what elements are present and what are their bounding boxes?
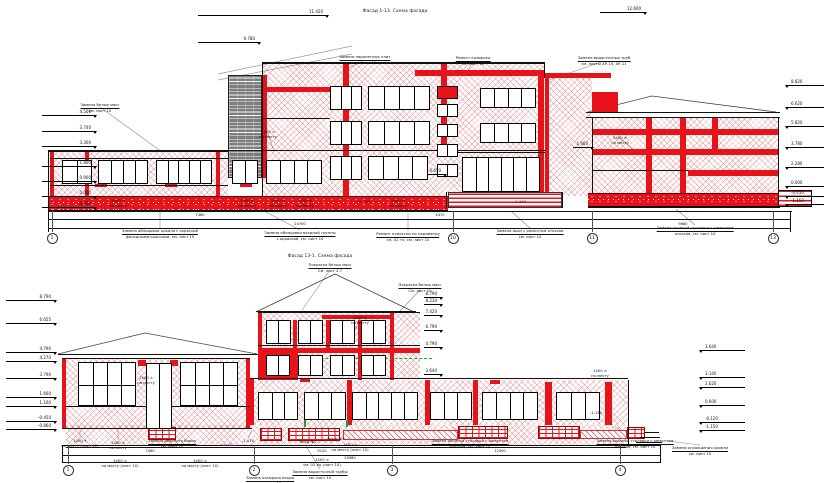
line xyxy=(586,117,780,118)
annotation-line: по месту xyxy=(259,135,277,140)
dimension-label: 12400 xyxy=(494,449,505,453)
annotation: 1400 ×по месту xyxy=(259,130,277,139)
marker-arrow-icon xyxy=(53,406,57,409)
marker-arrow-icon xyxy=(439,330,443,333)
axis-drop-line xyxy=(52,211,53,232)
marker-line xyxy=(6,323,56,324)
marker-arrow-icon xyxy=(53,323,57,326)
line xyxy=(62,462,660,463)
green-mark xyxy=(346,420,348,427)
line xyxy=(48,219,790,220)
marker-value: -0.450 xyxy=(428,169,441,173)
annotation-line: фасадными красками, см. лист 10 xyxy=(122,235,198,240)
repair-zone xyxy=(646,118,652,193)
annotation: 1400 ×см. 02 по (лист 10) xyxy=(303,458,341,467)
marker-value: 1.660 xyxy=(40,392,51,396)
window xyxy=(232,160,258,184)
annotation-line: по месту xyxy=(611,141,629,146)
repair-zone xyxy=(50,150,54,196)
window xyxy=(556,392,600,420)
window-mullion xyxy=(414,87,415,109)
marker-value: 4.270 xyxy=(40,356,51,360)
window-mullion xyxy=(526,158,527,191)
annotation-line: по месту (лист 10) xyxy=(181,464,218,469)
marker-arrow-icon xyxy=(785,167,789,170)
annotation: -1.150 xyxy=(358,200,370,205)
annotation-line: с окраской, см. лист 10 xyxy=(264,237,335,242)
annotation: Замена окон с ремонтом откосовсм. лист 1… xyxy=(497,229,564,239)
marker-value: 1.660 xyxy=(577,142,588,146)
green-mark xyxy=(304,420,306,427)
window-mullion xyxy=(121,363,122,405)
marker-value: 3.780 xyxy=(791,142,802,146)
annotation: Замена облицовки цоколя с окраскойфасадн… xyxy=(122,229,198,239)
annotation: 1400 ×по месту xyxy=(351,316,369,325)
annotation-line: См. лист 4.7 xyxy=(308,269,351,274)
annotation-line: См. лист 10 xyxy=(398,289,441,294)
window xyxy=(146,363,172,429)
window-mullion xyxy=(135,161,136,183)
marker-arrow-icon xyxy=(93,131,97,134)
line xyxy=(250,378,628,379)
window-mullion xyxy=(373,356,374,375)
marker-line xyxy=(786,167,824,168)
marker-arrow-icon xyxy=(439,297,443,300)
marker-line xyxy=(6,429,56,430)
window-mullion xyxy=(107,363,108,405)
marker-line xyxy=(700,377,745,378)
dimension-label: 9680 xyxy=(678,222,687,226)
annotation-line: по месту xyxy=(109,204,127,209)
annotation: 1400 ×по месту xyxy=(269,199,287,208)
marker-arrow-icon xyxy=(53,352,57,355)
annotation-line: по месту xyxy=(137,381,155,386)
marker-arrow-icon xyxy=(93,207,97,210)
annotation: 1400 ×по месту xyxy=(611,136,629,145)
marker-line xyxy=(700,405,745,406)
window-mullion xyxy=(457,393,458,419)
annotation-line: по месту xyxy=(351,321,369,326)
window-mullion xyxy=(373,321,374,343)
window xyxy=(266,160,322,184)
annotation-line: по месту xyxy=(109,446,127,451)
marker-arrow-icon xyxy=(785,126,789,129)
marker-value: 6.655 xyxy=(40,318,51,322)
window-mullion xyxy=(447,105,448,116)
marker-arrow-icon xyxy=(93,115,97,118)
line xyxy=(628,380,629,445)
window-mullion xyxy=(280,161,281,183)
marker-value: 3.740 xyxy=(80,126,91,130)
annotation: 1400 ×по месту (лист 10) xyxy=(61,439,98,448)
marker-arrow-icon xyxy=(439,304,443,307)
marker-arrow-icon xyxy=(93,166,97,169)
annotation: Вход №3 xyxy=(327,437,344,442)
drawing-title-bottom: Фасад 13-1. Схема фасада xyxy=(288,254,353,259)
window-mullion xyxy=(444,393,445,419)
line xyxy=(228,150,545,151)
annotation: 1400 ×по месту xyxy=(137,376,155,385)
window-mullion xyxy=(585,393,586,419)
marker-value: 12.600 xyxy=(627,7,641,11)
annotation-line: по месту xyxy=(389,204,407,209)
axis-drop-line xyxy=(392,445,393,464)
repair-zone xyxy=(216,150,220,196)
window-mullion xyxy=(342,356,343,375)
marker-line xyxy=(6,378,56,379)
marker-arrow-icon xyxy=(590,147,594,150)
annotation-line: -1.150 xyxy=(590,411,602,416)
marker-arrow-icon xyxy=(93,196,97,199)
marker-line xyxy=(700,430,745,431)
window-mullion xyxy=(341,87,342,109)
brick-patch xyxy=(260,428,282,441)
marker-value: -0.450 xyxy=(791,191,804,195)
facade-drawing-sheet: Фасад 1-13. Схема фасада Фасад 13-1. Схе… xyxy=(0,0,828,483)
window xyxy=(437,104,458,117)
marker-arrow-icon xyxy=(699,377,703,380)
annotation-line: по месту (лист 10) xyxy=(61,444,98,449)
window-mullion xyxy=(223,363,224,405)
window-mullion xyxy=(447,165,448,176)
annotation-line: по месту xyxy=(296,204,314,209)
window-transom xyxy=(181,385,237,386)
line xyxy=(262,118,330,119)
window xyxy=(266,355,290,376)
marker-arrow-icon xyxy=(53,429,57,432)
window xyxy=(98,160,148,184)
marker-value: 0.000 xyxy=(791,181,802,185)
window-mullion xyxy=(310,321,311,343)
marker-value: 2.620 xyxy=(705,382,716,386)
annotation-line: см. лист 10 xyxy=(672,452,728,457)
window xyxy=(298,320,323,344)
window xyxy=(368,121,430,145)
marker-line xyxy=(786,85,824,86)
repair-zone xyxy=(415,70,540,76)
annotation: -1.070 xyxy=(242,439,254,444)
marker-arrow-icon xyxy=(53,378,57,381)
repair-zone xyxy=(490,380,500,384)
marker-arrow-icon xyxy=(443,174,447,177)
window xyxy=(462,157,540,192)
marker-arrow-icon xyxy=(699,430,703,433)
annotation-line: по месту (лист 10) xyxy=(331,448,368,453)
window-mullion xyxy=(398,157,399,179)
marker-line xyxy=(42,181,96,182)
window xyxy=(298,355,323,376)
marker-arrow-icon xyxy=(439,347,443,350)
marker-line xyxy=(6,300,56,301)
annotation: Замена оконной столярки с ремонтомоткосо… xyxy=(432,439,509,449)
axis-bubble: 4 xyxy=(615,465,626,476)
window-mullion xyxy=(195,363,196,405)
window-mullion xyxy=(501,158,502,191)
axis-bubble: 10 xyxy=(448,233,459,244)
window xyxy=(266,320,291,344)
window-mullion xyxy=(476,158,477,191)
line xyxy=(588,207,780,208)
axis-bubble: 11 xyxy=(587,233,598,244)
marker-arrow-icon xyxy=(785,204,789,207)
window-mullion xyxy=(168,161,169,183)
annotation: Замена дверного блокасм. лист 10 xyxy=(148,439,196,449)
line xyxy=(562,192,563,208)
marker-arrow-icon xyxy=(699,405,703,408)
line xyxy=(50,158,228,159)
annotation-line: Вход №3 xyxy=(327,437,344,442)
repair-zone xyxy=(545,382,552,425)
marker-line xyxy=(6,352,56,353)
marker-value: 11.420 xyxy=(309,10,323,14)
window-mullion xyxy=(383,157,384,179)
annotation-line: по месту xyxy=(238,204,256,209)
marker-arrow-icon xyxy=(53,300,57,303)
window xyxy=(437,144,458,157)
dimension-label: 29980 xyxy=(344,456,355,460)
marker-line xyxy=(600,12,646,13)
dimension-label: 7460 xyxy=(145,449,154,453)
marker-line xyxy=(6,361,56,362)
annotation: 1400 ×по месту xyxy=(389,199,407,208)
window-mullion xyxy=(521,124,522,142)
line xyxy=(790,211,791,232)
window xyxy=(180,362,238,406)
window-mullion xyxy=(447,145,448,156)
line xyxy=(48,211,792,212)
repair-zone xyxy=(240,184,252,187)
window-mullion xyxy=(307,161,308,183)
axis-drop-line xyxy=(592,211,593,232)
annotation: Замена белых масссм. лист 10 xyxy=(81,103,120,113)
annotation-line: тип №1 xyxy=(221,443,236,448)
axis-bubble: 1 xyxy=(47,233,58,244)
annotation: Покраска белых массСм. лист 10 xyxy=(398,283,441,293)
line xyxy=(50,185,228,186)
window-mullion xyxy=(399,122,400,144)
annotation: 1400 ×по месту xyxy=(238,199,256,208)
repair-zone xyxy=(473,380,478,425)
line xyxy=(592,170,688,171)
marker-arrow-icon xyxy=(699,350,703,353)
repair-zone xyxy=(250,378,254,425)
marker-value: 5.820 xyxy=(791,121,802,125)
annotation-line: откосов, см. лист 10 xyxy=(597,445,674,450)
annotation: Замена козырька входасм. лист 10 xyxy=(246,476,294,483)
annotation-line: см. лист 10 xyxy=(456,62,491,67)
window xyxy=(368,156,428,180)
marker-line xyxy=(6,421,56,422)
window-mullion xyxy=(384,122,385,144)
marker-arrow-icon xyxy=(785,147,789,150)
marker-value: 3.640 xyxy=(705,345,716,349)
marker-line xyxy=(786,196,824,197)
window-mullion xyxy=(496,393,497,419)
marker-line xyxy=(42,166,96,167)
marker-value: 0.900 xyxy=(80,176,91,180)
marker-arrow-icon xyxy=(325,15,329,18)
window-mullion xyxy=(494,89,495,107)
annotation: Замена водосточных трубсм. листы АР-10, … xyxy=(578,56,631,66)
annotation: Вход №2 xyxy=(299,440,316,445)
annotation-line: по месту (лист 10) xyxy=(101,464,138,469)
marker-value: 3.140 xyxy=(705,372,716,376)
line xyxy=(62,358,250,359)
annotation: Замена водосточной трубысм. лист 10 xyxy=(292,470,347,480)
window xyxy=(352,392,418,420)
annotation-line: см. 02 по (лист 10) xyxy=(303,463,341,468)
marker-value: 1.160 xyxy=(40,401,51,405)
line xyxy=(446,192,447,208)
annotation: Покраска белых массСм. лист 4.7 xyxy=(308,263,351,273)
annotation-line: -1.070 xyxy=(242,439,254,444)
window-mullion xyxy=(342,321,343,343)
line xyxy=(544,62,545,78)
marker-value: -0.860 xyxy=(38,424,51,428)
marker-value: -0.450 xyxy=(38,416,51,420)
window-mullion xyxy=(351,157,352,179)
window-mullion xyxy=(310,356,311,375)
annotation-line: -1.150 xyxy=(514,200,526,205)
window-mullion xyxy=(513,158,514,191)
marker-line xyxy=(786,126,824,127)
annotation: 1400 ×по месту (лист 10) xyxy=(181,459,218,468)
marker-arrow-icon xyxy=(785,85,789,88)
window-mullion xyxy=(412,157,413,179)
window xyxy=(78,362,136,406)
marker-value: 4.790 xyxy=(40,347,51,351)
marker-arrow-icon xyxy=(93,181,97,184)
marker-value: 8.820 xyxy=(791,80,802,84)
marker-value: 8.230 xyxy=(426,299,437,303)
annotation-line: см. листы АР-10, АР-11 xyxy=(578,62,631,67)
window-mullion xyxy=(200,161,201,183)
annotation: 1400 ×по месту xyxy=(296,199,314,208)
drawing-title-top: Фасад 1-13. Схема фасада xyxy=(363,9,428,14)
marker-line xyxy=(700,350,745,351)
window-mullion xyxy=(510,393,511,419)
marker-value: -0.120 xyxy=(705,417,718,421)
annotation-line: по месту xyxy=(269,204,287,209)
window-mullion xyxy=(404,393,405,419)
window xyxy=(156,160,212,184)
repair-zone xyxy=(592,92,618,112)
marker-arrow-icon xyxy=(257,42,261,45)
axis-drop-line xyxy=(453,211,454,232)
marker-value: 7.420 xyxy=(426,310,437,314)
marker-line xyxy=(786,107,824,108)
marker-line xyxy=(6,397,56,398)
line xyxy=(258,345,420,346)
annotation: Замена ограждения кровлисм. лист 10 xyxy=(672,446,728,456)
annotation: 1400 ×по месту xyxy=(591,369,609,378)
window-mullion xyxy=(399,87,400,109)
marker-line xyxy=(786,147,824,148)
marker-value: 8.790 xyxy=(40,295,51,299)
annotation-line: см. лист 10 xyxy=(339,61,390,66)
window-mullion xyxy=(341,122,342,144)
window-mullion xyxy=(245,161,246,183)
window-mullion xyxy=(494,124,495,142)
axis-drop-line xyxy=(773,211,774,232)
annotation: Замена оконной столярки с ремонтомоткосо… xyxy=(597,439,674,449)
annotation: 1400 ×по месту xyxy=(109,199,127,208)
line xyxy=(262,62,545,64)
marker-value: 2.280 xyxy=(791,162,802,166)
repair-zone xyxy=(605,382,612,425)
window xyxy=(480,123,536,143)
marker-arrow-icon xyxy=(699,387,703,390)
line xyxy=(645,432,659,433)
marker-line xyxy=(42,207,96,208)
dimension-label: 24700 xyxy=(294,222,305,226)
repair-zone xyxy=(62,358,66,428)
marker-value: 0.600 xyxy=(705,400,716,404)
window-mullion xyxy=(123,161,124,183)
repair-zone xyxy=(688,170,778,176)
window-mullion xyxy=(391,393,392,419)
annotation: -1.150 xyxy=(590,411,602,416)
repair-zone xyxy=(545,78,549,196)
axis-bubble: 3 xyxy=(387,465,398,476)
annotation: 1400 ×по месту (лист 10) xyxy=(331,443,368,452)
marker-value: 0.000 xyxy=(80,191,91,195)
window xyxy=(361,355,386,376)
window-mullion xyxy=(508,89,509,107)
annotation-line: см. лист 10 xyxy=(497,235,564,240)
window-mullion xyxy=(571,393,572,419)
window-mullion xyxy=(488,158,489,191)
marker-value: 6.790 xyxy=(426,325,437,329)
axis-drop-line xyxy=(254,445,255,464)
line xyxy=(58,354,258,355)
marker-arrow-icon xyxy=(439,315,443,318)
entrance-stairs xyxy=(448,192,562,208)
window-mullion xyxy=(284,393,285,419)
marker-value: 3.640 xyxy=(426,369,437,373)
annotation: 1400 ×по месту xyxy=(109,441,127,450)
window xyxy=(437,124,458,137)
window xyxy=(368,86,430,110)
annotation-line: -1.150 xyxy=(358,200,370,205)
window-mullion xyxy=(278,321,279,343)
line xyxy=(258,312,420,313)
marker-arrow-icon xyxy=(93,146,97,149)
marker-value: 3.790 xyxy=(40,373,51,377)
annotation-line: см. лист 10 xyxy=(148,445,196,450)
marker-arrow-icon xyxy=(643,12,647,15)
line xyxy=(48,150,228,152)
window xyxy=(258,392,298,420)
annotation-line: см. лист 10 xyxy=(292,476,347,481)
window-mullion xyxy=(351,122,352,144)
marker-value: -0.450 xyxy=(78,202,91,206)
dimension-label: 7460 xyxy=(195,213,204,217)
window xyxy=(330,156,362,180)
marker-line xyxy=(700,387,745,388)
marker-line xyxy=(198,42,260,43)
annotation: Ремонт козырькасм. лист 10 xyxy=(456,56,491,66)
marker-line xyxy=(786,204,824,205)
marker-arrow-icon xyxy=(53,421,57,424)
window-mullion xyxy=(341,157,342,179)
window-transom xyxy=(79,385,135,386)
window-mullion xyxy=(159,364,160,428)
repair-zone xyxy=(712,118,718,155)
window xyxy=(330,355,355,376)
window-mullion xyxy=(384,87,385,109)
dimension-label: 4470 xyxy=(435,213,444,217)
